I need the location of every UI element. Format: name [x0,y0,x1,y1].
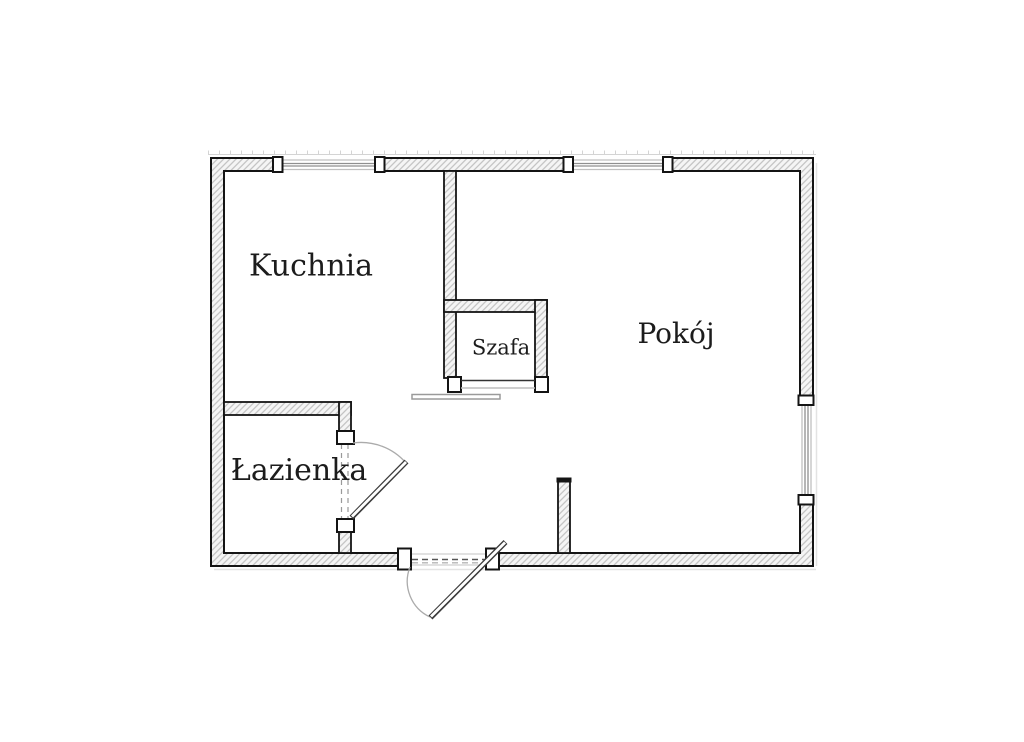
room-label-pokoj: Pokój [637,317,714,350]
door-jamb [448,377,461,392]
wall-shadow [214,163,817,570]
outer-wall-outline [211,158,813,566]
room-label-szafa: Szafa [472,336,530,360]
sliding-panel [412,395,500,400]
door-jamb [337,519,354,532]
window-opening [572,156,664,173]
window-jamb [799,495,814,505]
window-room-top [564,156,673,173]
room-labels: Kuchnia Pokój Szafa Łazienka [231,249,715,489]
door-entrance [398,542,506,618]
door-jamb [337,431,354,444]
wall-entry-stub [558,479,570,553]
window-jamb [375,157,385,172]
window-jamb [564,157,574,172]
wall-wardrobe-right [535,300,547,377]
window-kitchen [273,156,385,173]
wall-bathroom-right-lower [339,532,351,553]
wall-entry-stub-cap [557,478,572,483]
window-jamb [663,157,673,172]
sliding-door-wardrobe [412,377,548,399]
window-opening [281,156,376,173]
room-label-lazienka: Łazienka [231,453,368,488]
facade-tick-line [208,153,816,155]
room-label-kuchnia: Kuchnia [249,249,373,284]
interior-walls [224,171,572,553]
outer-wall-fill [211,158,813,566]
wall-kitchen-room-divider [444,171,456,378]
window-jamb [273,157,283,172]
inner-wall-outline [224,171,800,553]
wall-bathroom-top [224,402,351,415]
window-room-right [798,396,815,505]
wall-wardrobe-top [444,300,547,312]
door-jamb [535,377,548,392]
floorplan-svg: Kuchnia Pokój Szafa Łazienka [0,0,1024,742]
window-opening [798,403,815,496]
outer-walls [211,158,813,566]
door-swing-arc [407,567,430,617]
window-jamb [799,396,814,406]
door-jamb [398,549,411,570]
floorplan-canvas: Kuchnia Pokój Szafa Łazienka [0,0,1024,742]
wall-bathroom-right-upper [339,402,351,432]
